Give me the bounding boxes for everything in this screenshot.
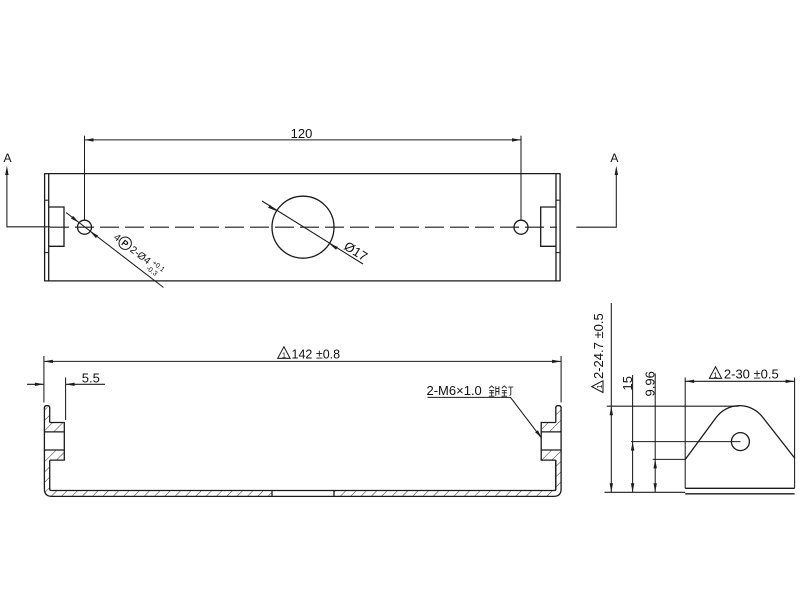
svg-text:2-30 ±0.5: 2-30 ±0.5 — [724, 366, 779, 381]
svg-text:120: 120 — [291, 126, 313, 141]
svg-text:A: A — [610, 151, 618, 165]
svg-text:A: A — [3, 151, 11, 165]
svg-text:2-24.7 ±0.5: 2-24.7 ±0.5 — [591, 313, 606, 379]
svg-text:1: 1 — [713, 370, 717, 379]
svg-text:15: 15 — [620, 376, 635, 390]
svg-text:1: 1 — [595, 385, 604, 389]
svg-text:9.96: 9.96 — [643, 371, 658, 396]
svg-text:142 ±0.8: 142 ±0.8 — [292, 347, 341, 361]
svg-text:1: 1 — [282, 350, 286, 359]
svg-text:2-M6×1.0: 2-M6×1.0 — [427, 383, 482, 398]
svg-text:5.5: 5.5 — [82, 371, 100, 386]
